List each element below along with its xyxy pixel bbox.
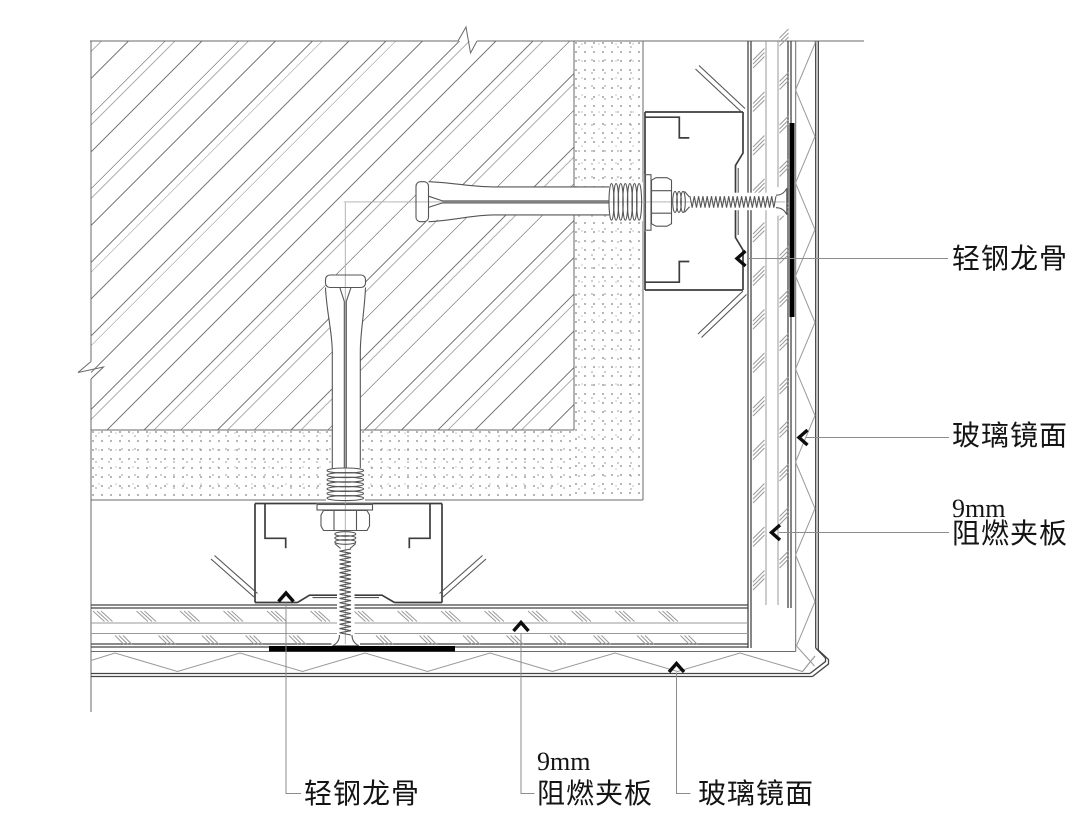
corner-bullnose	[810, 648, 829, 677]
leader-lines	[286, 259, 949, 794]
label-bottom-mirror: 玻璃镜面	[698, 781, 814, 809]
label-bottom-plywood: 阻燃夹板	[537, 781, 653, 809]
mirror-backing-bar-bottom	[269, 646, 455, 652]
mirror-backing-bar-right	[790, 123, 795, 317]
label-right-plywood: 阻燃夹板	[952, 521, 1068, 549]
break-symbol-left	[78, 362, 104, 380]
plywood-hatch-marks	[115, 636, 698, 645]
drawing-linework	[0, 0, 1080, 831]
label-bottom-plywood-size: 9mm	[537, 749, 590, 775]
break-symbol-top	[458, 27, 477, 53]
expansion-anchor-right	[344, 174, 787, 231]
cad-detail-drawing: 轻钢龙骨 玻璃镜面 9mm 阻燃夹板 轻钢龙骨 9mm 阻燃夹板 玻璃镜面	[0, 0, 1080, 831]
arrow-bottom-plywood	[514, 623, 529, 632]
expansion-anchor-bottom	[316, 203, 373, 646]
arrow-bottom-keel	[279, 593, 294, 602]
label-right-keel: 轻钢龙骨	[952, 246, 1068, 274]
label-right-mirror: 玻璃镜面	[952, 423, 1068, 451]
plywood-hatch-marks	[780, 29, 789, 568]
right-wall-layers	[748, 29, 818, 652]
plywood-hatch-marks	[753, 49, 765, 591]
label-bottom-keel: 轻钢龙骨	[304, 781, 420, 809]
mirror-zigzag-right	[796, 41, 816, 646]
plywood-hatch-marks	[93, 611, 678, 622]
arrow-right-keel	[737, 251, 746, 266]
mirror-zigzag-bottom	[91, 653, 815, 672]
arrow-right-plywood	[772, 525, 781, 540]
bottom-wall-layers	[91, 605, 829, 677]
wall-boundaries	[78, 27, 864, 712]
